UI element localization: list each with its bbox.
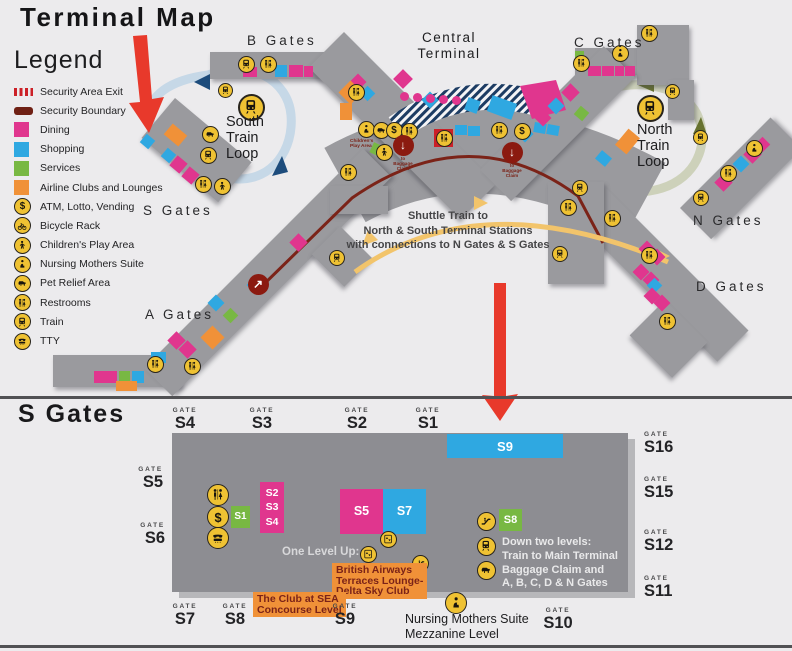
restroom-legend-icon <box>14 294 40 311</box>
legend-item-tty: TTY <box>14 331 163 350</box>
bike-icon <box>14 217 31 234</box>
gate-number: S5 <box>138 474 163 490</box>
restroom-icon <box>207 484 229 506</box>
clubs-swatch <box>14 180 29 195</box>
detail-title-s-gates: S Gates <box>18 400 125 429</box>
section-divider-top <box>0 396 792 399</box>
restroom-icon <box>340 164 357 181</box>
train-icon <box>637 95 664 122</box>
children-legend-icon <box>14 237 40 254</box>
legend-item-airline-clubs: Airline Clubs and Lounges <box>14 178 163 197</box>
atm-icon: $ <box>14 198 31 215</box>
bike-legend-icon <box>14 217 40 234</box>
services-legend-icon <box>14 161 40 176</box>
children-icon <box>14 237 31 254</box>
shopping-square <box>275 65 287 77</box>
legend-item-restrooms: Restrooms <box>14 293 163 312</box>
gate-label-S16: GATES16 <box>644 431 673 455</box>
legend-item-label: TTY <box>40 335 60 347</box>
dining-square <box>304 66 313 77</box>
gate-block-S2-S3-S4: S2 S3 S4 <box>260 482 284 533</box>
gate-block-S9: S9 <box>447 434 563 458</box>
baggage-claim-note-1: to Baggage Claim <box>388 156 418 172</box>
services-swatch <box>14 161 29 176</box>
dining-square <box>625 66 635 76</box>
tty-icon <box>207 527 229 549</box>
train-icon <box>200 147 217 164</box>
gate-label-S4: GATES4 <box>173 407 198 431</box>
elevator-icon <box>360 546 377 563</box>
restroom-icon <box>659 313 676 330</box>
clubs-square <box>116 381 137 391</box>
legend-item-label: Restrooms <box>40 297 91 309</box>
gate-block-S8: S8 <box>499 509 522 531</box>
label-central-terminal: Central Terminal <box>398 30 500 62</box>
train-icon <box>477 537 496 556</box>
restroom-icon <box>195 176 212 193</box>
security-boundary-swatch <box>14 107 33 115</box>
restroom-icon <box>348 84 365 101</box>
legend-item-pet-relief-area: Pet Relief Area <box>14 274 163 293</box>
train-legend-icon <box>14 313 40 330</box>
legend-item-label: Train <box>40 316 64 328</box>
shopping-square <box>487 95 517 120</box>
dining-dot <box>439 95 448 104</box>
legend-title: Legend <box>14 46 103 75</box>
shopping-square <box>595 150 612 167</box>
gate-label-S8: GATES8 <box>223 603 248 627</box>
label-n-gates: N Gates <box>693 213 764 228</box>
pet-icon <box>14 275 31 292</box>
page-title: Terminal Map <box>20 2 216 33</box>
pet-icon <box>202 126 219 143</box>
clubs-legend-icon <box>14 180 40 195</box>
atm-icon: $ <box>514 123 531 140</box>
gate-block-S7: S7 <box>383 489 426 534</box>
gate-number: S15 <box>644 484 673 500</box>
gate-label-S11: GATES11 <box>644 575 672 599</box>
legend-item-label: Airline Clubs and Lounges <box>40 182 163 194</box>
gate-number: S8 <box>223 611 248 627</box>
legend-item-label: Children's Play Area <box>40 239 134 251</box>
british-airways-lounge-note: British Airways Terraces Lounge- Delta S… <box>332 563 427 599</box>
down-two-levels-note: Down two levels: Train to Main Terminal … <box>502 536 618 591</box>
shopping-square <box>546 124 560 136</box>
tty-icon <box>14 333 31 350</box>
gate-block-S1: S1 <box>231 506 250 528</box>
legend-item-label: Security Area Exit <box>40 86 123 98</box>
train-icon <box>693 130 708 145</box>
pet-icon <box>477 561 496 580</box>
gate-number: S12 <box>644 537 673 553</box>
nursing-icon <box>746 140 763 157</box>
gate-number: S16 <box>644 439 673 455</box>
security-exit-icon: ↓ <box>502 142 523 163</box>
label-d-gates: D Gates <box>696 279 767 294</box>
restroom-icon <box>184 358 201 375</box>
security-exit-swatch <box>14 88 33 96</box>
gate-label-S3: GATES3 <box>250 407 275 431</box>
gate-number: S4 <box>173 415 198 431</box>
restroom-icon <box>14 294 31 311</box>
restroom-icon <box>491 122 508 139</box>
legend-item-label: Nursing Mothers Suite <box>40 258 144 270</box>
dining-square <box>289 65 303 77</box>
gate-number: S9 <box>333 611 358 627</box>
legend-item-label: Shopping <box>40 143 84 155</box>
restroom-icon <box>147 356 164 373</box>
gate-number: S6 <box>140 530 165 546</box>
children-icon <box>214 178 231 195</box>
gate-label-S7: GATES7 <box>173 603 198 627</box>
security-exit-icon: ↓ <box>393 135 414 156</box>
dining-dot <box>426 94 435 103</box>
train-icon <box>572 180 588 196</box>
gate-label-S10: GATES10 <box>543 607 572 631</box>
legend-item-train: Train <box>14 312 163 331</box>
gate-block-S5: S5 <box>340 489 383 534</box>
atm-legend-icon: $ <box>14 198 40 215</box>
train-icon <box>665 84 680 99</box>
dining-square <box>588 66 601 76</box>
restroom-icon <box>260 56 277 73</box>
gate-label-S15: GATES15 <box>644 476 673 500</box>
gate-label-S9: GATES9 <box>333 603 358 627</box>
shuttle-train-note: Shuttle Train to North & South Terminal … <box>327 209 569 253</box>
restroom-icon <box>573 55 590 72</box>
nursing-icon <box>14 256 31 273</box>
legend-item-shopping: Shopping <box>14 140 163 159</box>
legend-item-label: Security Boundary <box>40 105 126 117</box>
childrens-play-area-note: Children's Play Area <box>350 139 373 150</box>
dining-legend-icon <box>14 122 40 137</box>
dining-square <box>615 66 624 76</box>
gate-label-S1: GATES1 <box>416 407 441 431</box>
shopping-square <box>464 97 481 114</box>
shopping-square <box>455 125 467 135</box>
nursing-icon <box>358 121 375 138</box>
legend: Security Area ExitSecurity BoundaryDinin… <box>14 82 163 351</box>
legend-item-label: Bicycle Rack <box>40 220 100 232</box>
train-icon <box>693 190 709 206</box>
restroom-icon <box>604 210 621 227</box>
dining-swatch <box>14 122 29 137</box>
legend-item-childrens-play-area: Children's Play Area <box>14 236 163 255</box>
terminal-map-page: Terminal Map Legend Security Area ExitSe… <box>0 0 792 651</box>
train-icon <box>238 56 255 73</box>
legend-item-bicycle-rack: Bicycle Rack <box>14 216 163 235</box>
train-icon <box>14 313 31 330</box>
gate-label-S12: GATES12 <box>644 529 673 553</box>
legend-item-services: Services <box>14 159 163 178</box>
label-b-gates: B Gates <box>247 33 317 48</box>
tty-legend-icon <box>14 333 40 350</box>
label-north-train-loop: North Train Loop <box>637 122 672 170</box>
dining-dot <box>400 92 409 101</box>
pet-legend-icon <box>14 275 40 292</box>
train-icon <box>218 83 233 98</box>
gate-label-S5: GATES5 <box>138 466 163 490</box>
security-exit-icon: ↗ <box>248 274 269 295</box>
gate-number: S7 <box>173 611 198 627</box>
legend-item-label: Dining <box>40 124 70 136</box>
nursing-legend-icon <box>14 256 40 273</box>
legend-item-security-area-exit: Security Area Exit <box>14 82 163 101</box>
exit-legend-icon <box>14 88 40 96</box>
label-c-gates: C Gates <box>574 35 645 50</box>
dining-square <box>94 371 117 383</box>
legend-item-security-boundary: Security Boundary <box>14 101 163 120</box>
gate-number: S3 <box>250 415 275 431</box>
dining-dot <box>452 96 461 105</box>
legend-item-label: Services <box>40 162 80 174</box>
one-level-up-note: One Level Up: <box>282 546 359 558</box>
atm-icon: $ <box>207 506 229 528</box>
nursing-mothers-suite-note: Nursing Mothers Suite Mezzanine Level <box>405 612 529 641</box>
gate-number: S10 <box>543 615 572 631</box>
restroom-icon <box>436 130 453 147</box>
dining-square <box>602 66 614 76</box>
boundary-legend-icon <box>14 107 40 115</box>
legend-item-nursing-mothers-suite: Nursing Mothers Suite <box>14 255 163 274</box>
gate-label-S2: GATES2 <box>345 407 370 431</box>
elevator-icon <box>380 531 397 548</box>
legend-item-dining: Dining <box>14 120 163 139</box>
shopping-legend-icon <box>14 142 40 157</box>
label-s-gates: S Gates <box>143 203 213 218</box>
label-a-gates: A Gates <box>145 307 214 322</box>
gate-number: S1 <box>416 415 441 431</box>
label-south-train-loop: South Train Loop <box>226 114 264 162</box>
restroom-icon <box>720 165 737 182</box>
legend-item-label: ATM, Lotto, Vending <box>40 201 134 213</box>
dining-dot <box>413 93 422 102</box>
section-divider-bottom <box>0 645 792 648</box>
restroom-icon <box>641 247 658 264</box>
shopping-swatch <box>14 142 29 157</box>
escalator-icon <box>477 512 496 531</box>
baggage-claim-note-2: to Baggage Claim <box>497 163 527 179</box>
clubs-square <box>340 103 352 120</box>
red-arrow-detail <box>482 283 518 421</box>
gate-number: S2 <box>345 415 370 431</box>
legend-item-atm: $ATM, Lotto, Vending <box>14 197 163 216</box>
nursing-icon <box>445 592 467 614</box>
gate-label-S6: GATES6 <box>140 522 165 546</box>
gate-number: S11 <box>644 583 672 599</box>
shopping-square <box>468 126 480 136</box>
legend-item-label: Pet Relief Area <box>40 277 110 289</box>
